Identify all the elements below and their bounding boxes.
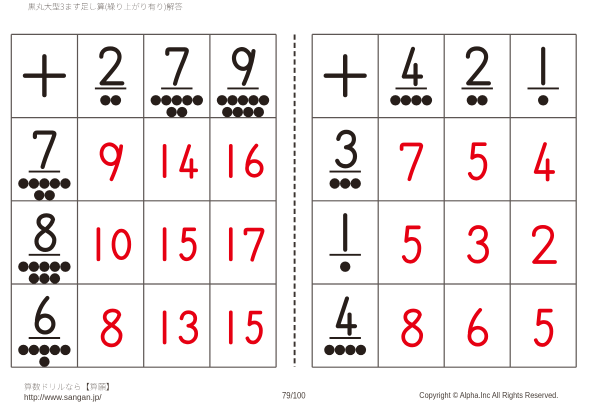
svg-text:http://www.sangan.jp/: http://www.sangan.jp/ xyxy=(24,393,102,402)
svg-text:Copyright © Alpha.Inc All Ri: Copyright © Alpha.Inc All Rights Reserve… xyxy=(419,391,558,400)
svg-text:79/100: 79/100 xyxy=(282,390,306,401)
